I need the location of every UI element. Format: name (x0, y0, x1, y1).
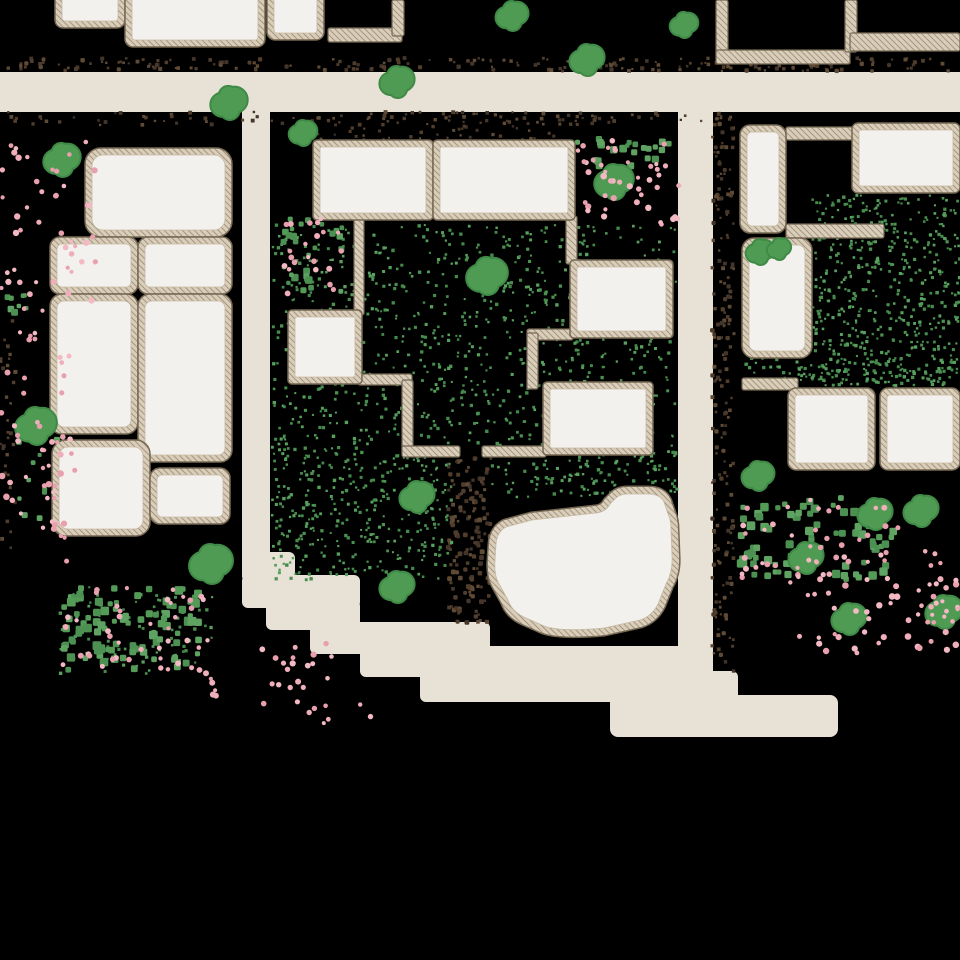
wall-segment (786, 127, 856, 140)
building-room (880, 388, 960, 470)
road-segment (0, 72, 960, 112)
road-segment (678, 108, 713, 678)
blob-building (495, 494, 672, 630)
wall-segment (786, 224, 884, 238)
wall-segment (527, 333, 538, 389)
wall-segment (354, 218, 364, 315)
building-room (150, 468, 230, 524)
wall-segment (392, 0, 404, 36)
wall-segment (742, 378, 798, 390)
road-segment (610, 695, 838, 737)
building-room (52, 440, 150, 536)
building-room (740, 125, 786, 233)
building-room (125, 0, 265, 47)
map-canvas (0, 0, 960, 960)
building-room (433, 140, 575, 220)
building-room (267, 0, 324, 40)
building-room (313, 140, 433, 220)
building-room (50, 237, 138, 294)
wall-segment (402, 446, 460, 457)
building-room (55, 0, 125, 28)
wall-segment (566, 216, 577, 264)
village-map (0, 0, 960, 960)
wall-segment (402, 380, 413, 455)
wall-segment (850, 33, 960, 51)
wall-segment (716, 50, 850, 64)
building-room (138, 237, 232, 294)
building-room (138, 294, 232, 462)
building-room (852, 123, 960, 193)
wall-segment (328, 28, 402, 42)
building-room (788, 388, 875, 470)
road-segment (242, 108, 270, 560)
building-room (85, 148, 232, 237)
wall-segment (482, 446, 546, 457)
building-room (543, 382, 653, 455)
building-room (288, 310, 362, 384)
building-room (570, 260, 673, 338)
